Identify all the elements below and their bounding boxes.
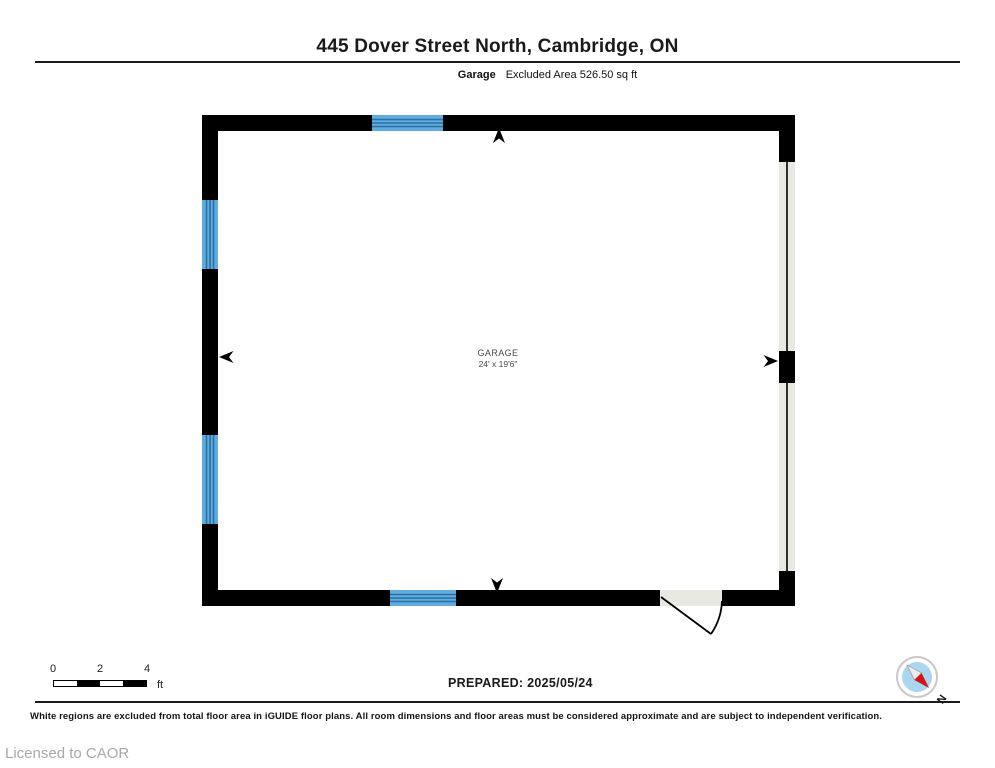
window-pane-lines [207, 120, 457, 602]
scale-segment [100, 681, 123, 686]
arrow-right-icon [764, 355, 779, 367]
garage-door-panels [660, 162, 795, 606]
room-label: GARAGE 24' x 19'6" [423, 348, 573, 369]
scale-bar-ruler [53, 680, 147, 687]
compass-icon: N [893, 653, 951, 713]
room-label-name: GARAGE [423, 348, 573, 359]
arrow-left-icon [219, 351, 234, 363]
scale-unit-label: ft [157, 679, 163, 691]
scale-segment [54, 681, 77, 686]
floor-plan-page: 445 Dover Street North, Cambridge, ON Ga… [0, 0, 995, 768]
scale-tick-2: 2 [97, 663, 103, 675]
footer-divider [35, 701, 960, 703]
room-label-dimensions: 24' x 19'6" [423, 359, 573, 369]
scale-bar: 0 2 4 ft [53, 663, 147, 687]
license-label: Licensed to CAOR [5, 745, 129, 762]
disclaimer-text: White regions are excluded from total fl… [30, 711, 965, 722]
scale-bar-ticks: 0 2 4 [53, 663, 147, 677]
garage-floorplan [0, 0, 995, 768]
prepared-date-label: PREPARED: 2025/05/24 [448, 676, 593, 690]
scale-segment [123, 681, 146, 686]
scale-segment [77, 681, 100, 686]
scale-tick-0: 0 [50, 663, 56, 675]
compass-north-label: N [934, 692, 948, 705]
windows [202, 115, 456, 606]
scale-tick-4: 4 [144, 663, 150, 675]
